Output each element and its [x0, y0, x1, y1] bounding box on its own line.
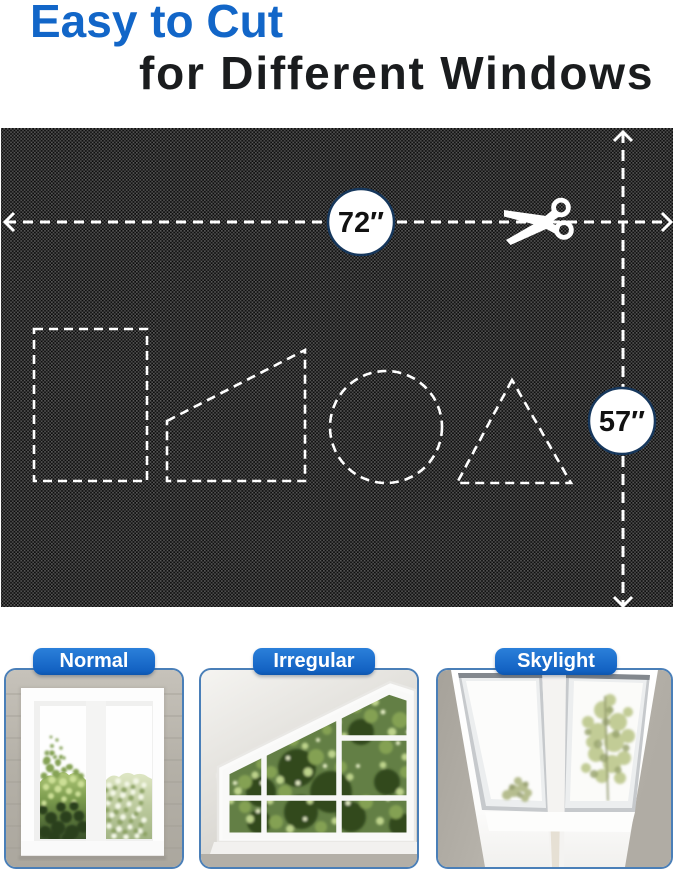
svg-text:57″: 57″ — [599, 406, 645, 438]
svg-text:72″: 72″ — [338, 207, 384, 239]
